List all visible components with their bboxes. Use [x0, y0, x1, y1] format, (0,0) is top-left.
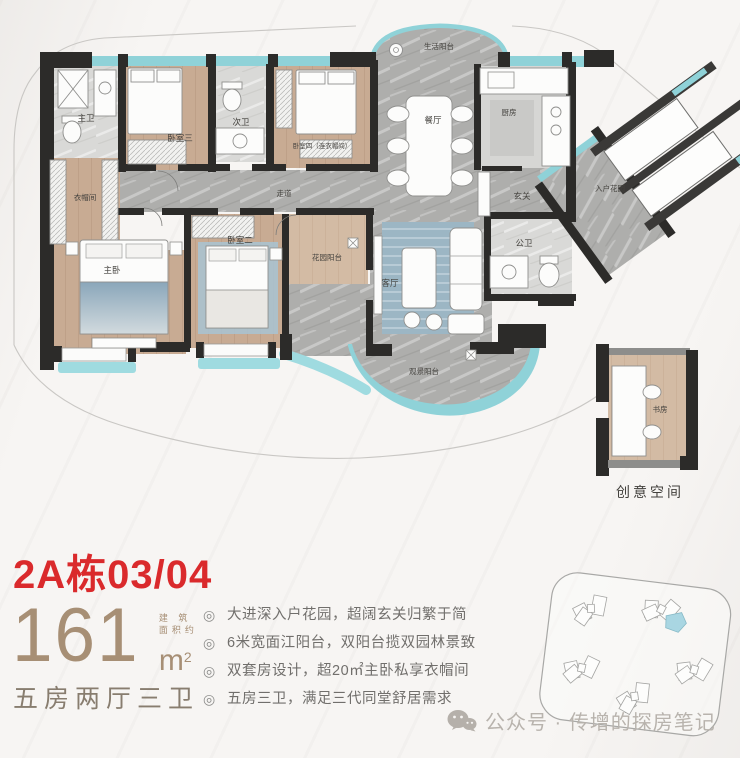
- area-value: 161: [12, 600, 140, 672]
- poster: 生活阳台 主卫 卧室三 次卫 卧室四（连衣帽间） 厨房 餐厅 玄关 入户花园 衣…: [0, 0, 740, 758]
- unit-title: 2A栋03/04: [13, 542, 212, 600]
- area-note-line2: 面积约: [159, 624, 198, 636]
- room-label-foyer: 玄关: [513, 191, 531, 201]
- bullet-icon: ◎: [203, 690, 227, 709]
- chair: [643, 385, 661, 399]
- kitchen-counters: [480, 68, 570, 171]
- layout-summary: 五房两厅三卫: [13, 679, 199, 715]
- master-bed: [66, 240, 182, 348]
- feature-item: ◎ 双套房设计，超20㎡主卧私享衣帽间: [203, 662, 533, 681]
- room-label-dining: 餐厅: [424, 115, 442, 125]
- caption-creative-space: 创意空间: [616, 484, 684, 500]
- room-label-living: 客厅: [381, 278, 399, 288]
- corridor-floor: [118, 170, 378, 212]
- room-label-view-balcony: 观景阳台: [409, 366, 439, 376]
- desk: [612, 366, 646, 456]
- room-label-master-bath: 主卫: [77, 113, 95, 123]
- feature-item: ◎ 大进深入户花园，超阔玄关归繁于简: [203, 606, 533, 625]
- room-label-service-balcony: 生活阳台: [424, 41, 454, 51]
- floor-marker-icon: [348, 238, 358, 248]
- area-note-line1: 建 筑: [159, 612, 198, 624]
- window-glass: [500, 56, 592, 67]
- feature-list: ◎ 大进深入户花园，超阔玄关归繁于简 ◎ 6米宽面江阳台，双阳台揽双园林景致 ◎…: [203, 606, 533, 718]
- creative-space-room: [596, 344, 698, 476]
- chair: [643, 425, 661, 439]
- room-label-public-bath: 公卫: [515, 238, 533, 248]
- bullet-icon: ◎: [203, 606, 227, 625]
- floor-marker-icon: [466, 350, 476, 360]
- watermark: 公众号 · 传增的探房笔记: [447, 706, 716, 735]
- floor-plan: 生活阳台 主卫 卧室三 次卫 卧室四（连衣帽间） 厨房 餐厅 玄关 入户花园 衣…: [0, 0, 740, 530]
- room-label-bedroom3: 卧室三: [167, 133, 193, 143]
- bullet-icon: ◎: [203, 662, 227, 681]
- room-label-bedroom4: 卧室四（连衣帽间）: [293, 141, 352, 150]
- room-label-study: 书房: [653, 404, 668, 414]
- room-label-master-bedroom: 主卧: [103, 265, 121, 275]
- bullet-icon: ◎: [203, 634, 227, 653]
- public-bath-fixtures: [490, 256, 559, 288]
- bedroom3-furniture: [128, 68, 186, 164]
- room-label-kitchen: 厨房: [502, 107, 517, 117]
- area-block: 161 建 筑 面积约 m2: [12, 600, 198, 676]
- wechat-icon: [447, 709, 477, 733]
- room-label-corridor: 走道: [277, 188, 292, 198]
- garden-balcony-floor: [286, 214, 368, 284]
- room-label-second-bath: 次卫: [232, 117, 250, 127]
- watermark-text: 公众号 · 传增的探房笔记: [485, 706, 716, 735]
- shoe-cabinet: [478, 172, 490, 216]
- room-label-entry-garden: 入户花园: [595, 183, 625, 193]
- room-label-bedroom2: 卧室二: [227, 235, 253, 245]
- area-unit: m2: [159, 642, 198, 676]
- room-label-garden-balcony: 花园阳台: [312, 252, 342, 262]
- washer-icon: [390, 44, 403, 57]
- feature-item: ◎ 6米宽面江阳台，双阳台揽双园林景致: [203, 634, 533, 653]
- room-label-cloakroom: 衣帽间: [74, 192, 97, 202]
- dining-table: [387, 96, 473, 196]
